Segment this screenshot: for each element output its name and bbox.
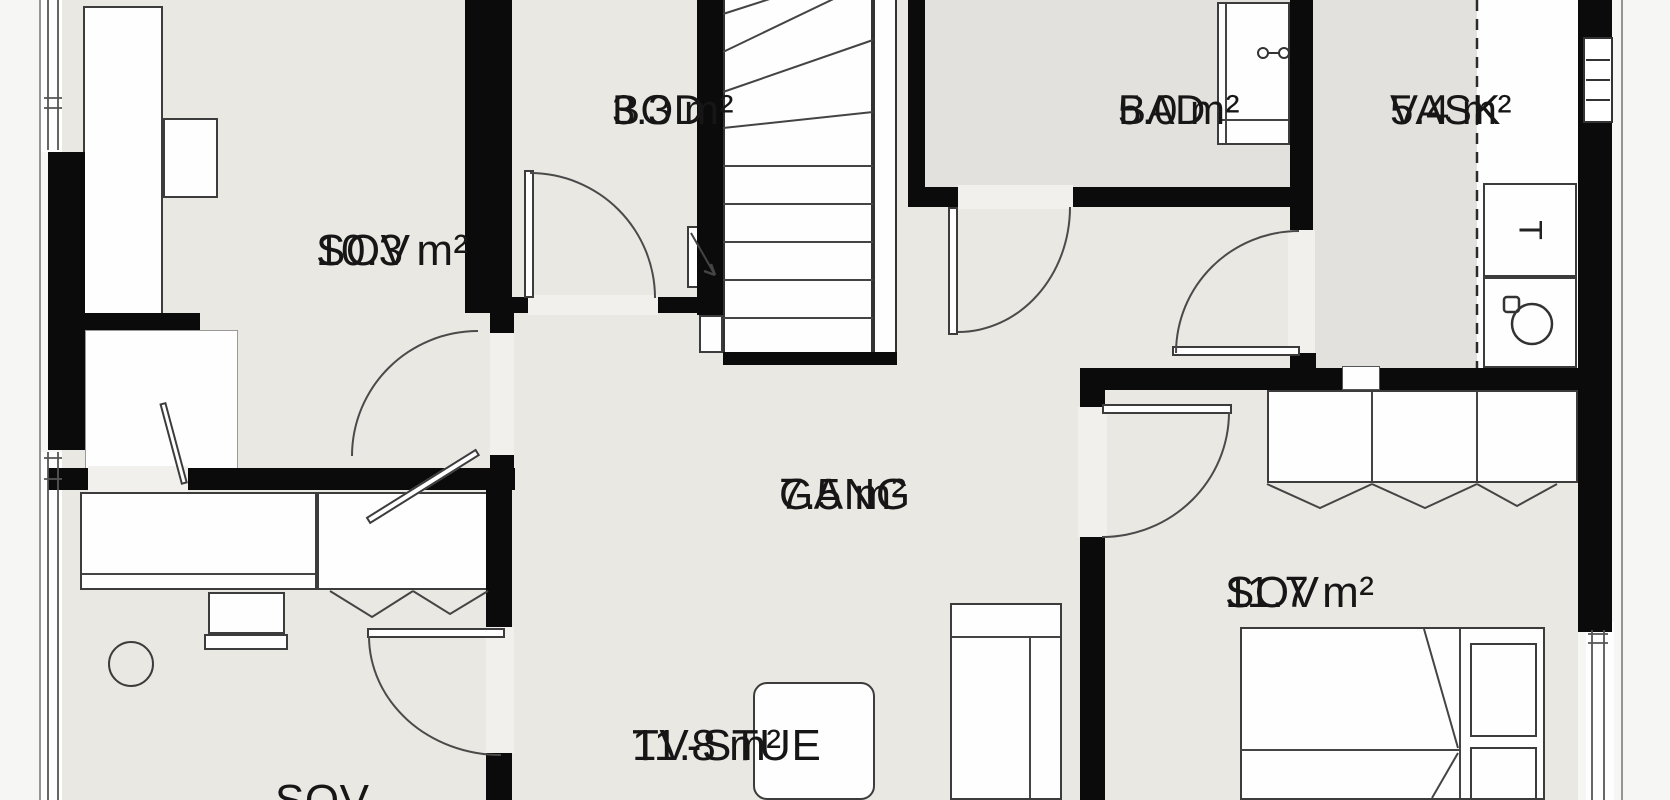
doorway (958, 185, 1073, 209)
wall-stair-west (697, 0, 723, 315)
wall-sov-right-top (1080, 368, 1578, 390)
desk-side-table (163, 118, 218, 198)
stairs-icon (723, 0, 873, 352)
doorway (528, 295, 658, 315)
wall-opening (1342, 366, 1380, 390)
wall-closet-nook (48, 313, 200, 330)
pillow (1470, 643, 1537, 737)
window-icon (40, 0, 62, 152)
doorway (88, 466, 188, 492)
shelf (208, 592, 285, 634)
wall-sov-bod (465, 0, 512, 313)
wall-gang-west-lower (490, 453, 514, 468)
doorway (490, 333, 514, 455)
vask-floor (1313, 0, 1477, 368)
wall-stair-east (908, 0, 925, 207)
wardrobe-icon (317, 492, 488, 590)
window-icon (40, 452, 62, 800)
shelf-lip (204, 634, 288, 650)
wall-exterior-left (48, 152, 85, 450)
window-icon (1586, 622, 1614, 800)
stair-wall-cap (699, 315, 723, 353)
washing-machine-icon (1483, 277, 1577, 368)
stair-handrail (873, 0, 897, 352)
floor-plan: SOV10.3 m² BOD3.3 m² BAD5.0 m² VASK5.4 m… (0, 0, 1670, 800)
chair-icon (108, 641, 154, 687)
sofa-icon (950, 603, 1062, 800)
wall-bad-vask (1290, 0, 1313, 230)
door-icon (948, 207, 958, 335)
wardrobe-icon (1267, 390, 1578, 483)
dryer-label: T (1512, 220, 1549, 240)
wall-gang-west-upper (490, 313, 514, 333)
wall-exterior-right (1578, 0, 1612, 632)
desk-icon (80, 492, 317, 590)
pillow (1470, 747, 1537, 800)
desk-icon (83, 6, 163, 322)
stair-bottom-edge (723, 352, 897, 365)
